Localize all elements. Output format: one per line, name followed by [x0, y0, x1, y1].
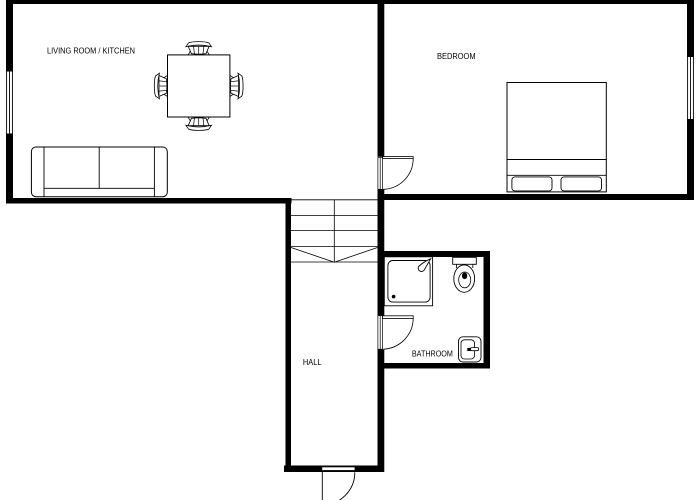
svg-text:BATHROOM: BATHROOM [412, 348, 453, 358]
svg-text:LIVING ROOM / KITCHEN: LIVING ROOM / KITCHEN [47, 46, 135, 55]
svg-text:BEDROOM: BEDROOM [437, 51, 476, 61]
svg-text:HALL: HALL [303, 357, 322, 367]
